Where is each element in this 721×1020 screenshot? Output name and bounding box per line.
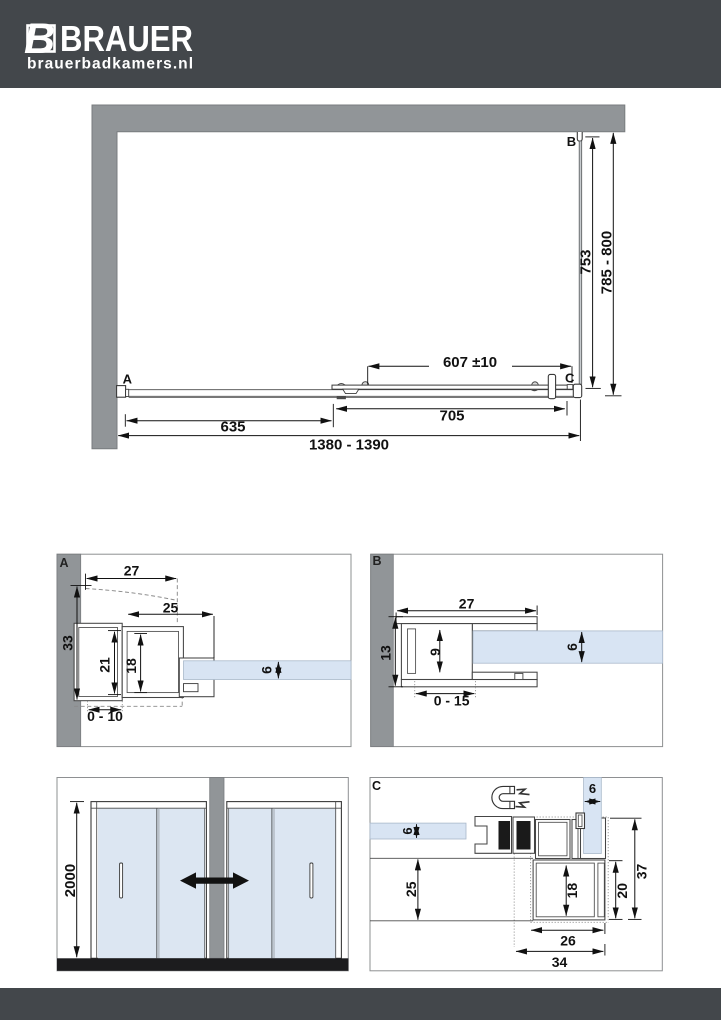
svg-text:705: 705	[439, 407, 464, 424]
svg-text:18: 18	[123, 658, 139, 674]
svg-text:27: 27	[459, 595, 475, 611]
svg-text:785 - 800: 785 - 800	[599, 231, 616, 294]
svg-text:753: 753	[578, 249, 595, 274]
svg-text:A: A	[123, 371, 133, 386]
svg-text:2000: 2000	[62, 864, 79, 897]
svg-text:0 - 15: 0 - 15	[434, 693, 470, 709]
svg-text:B: B	[567, 134, 576, 149]
svg-text:C: C	[372, 779, 381, 793]
svg-text:20: 20	[614, 883, 630, 899]
svg-text:B: B	[372, 554, 381, 568]
svg-text:9: 9	[427, 648, 443, 656]
svg-text:BRAUER: BRAUER	[60, 18, 193, 59]
svg-text:1380 - 1390: 1380 - 1390	[309, 436, 389, 453]
svg-text:13: 13	[377, 645, 393, 661]
svg-text:C: C	[565, 371, 575, 386]
svg-text:6: 6	[400, 827, 415, 834]
svg-text:6: 6	[589, 781, 596, 796]
svg-text:607 ±10: 607 ±10	[443, 354, 497, 371]
svg-text:21: 21	[97, 657, 113, 673]
svg-text:0 - 10: 0 - 10	[87, 708, 123, 724]
svg-text:27: 27	[124, 563, 140, 579]
svg-text:34: 34	[552, 954, 568, 970]
svg-text:33: 33	[59, 635, 75, 651]
svg-text:635: 635	[220, 419, 245, 436]
svg-text:18: 18	[564, 883, 580, 899]
svg-text:37: 37	[634, 864, 650, 880]
svg-text:25: 25	[163, 599, 179, 615]
svg-text:brauerbadkamers.nl: brauerbadkamers.nl	[27, 56, 193, 73]
svg-text:26: 26	[560, 932, 576, 948]
svg-text:6: 6	[564, 643, 580, 651]
svg-text:A: A	[59, 556, 68, 570]
svg-text:25: 25	[403, 881, 419, 897]
svg-text:6: 6	[258, 666, 274, 674]
